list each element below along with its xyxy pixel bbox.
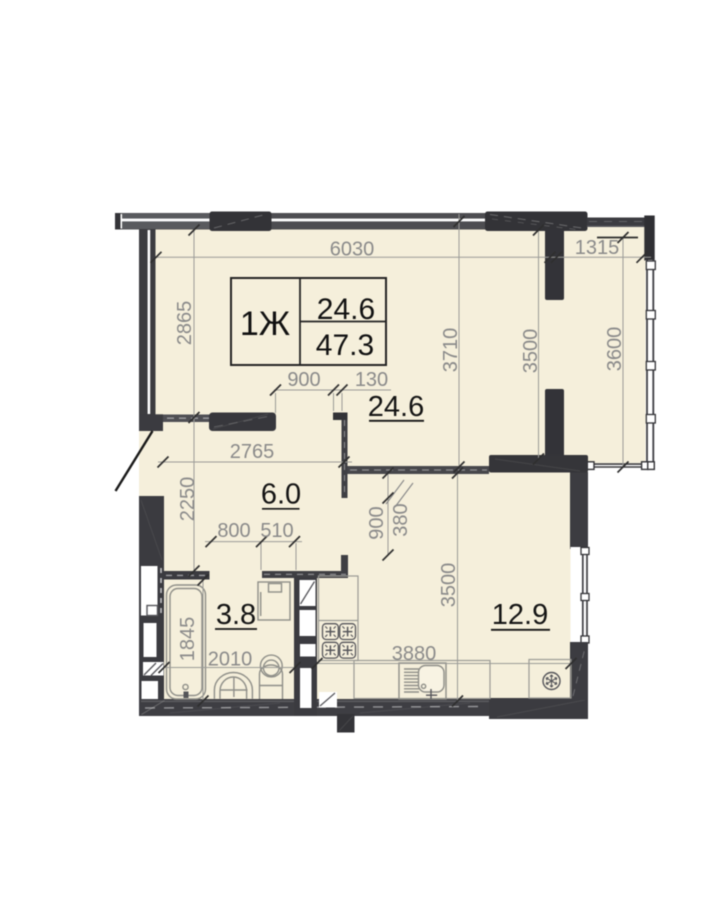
svg-text:900: 900	[287, 369, 320, 391]
svg-text:3600: 3600	[604, 327, 626, 372]
svg-text:380: 380	[390, 503, 412, 536]
svg-text:6.0: 6.0	[261, 479, 301, 511]
svg-text:2765: 2765	[230, 441, 275, 463]
svg-text:510: 510	[260, 520, 293, 542]
svg-text:130: 130	[355, 369, 388, 391]
svg-text:3500: 3500	[520, 329, 542, 374]
svg-text:3710: 3710	[440, 328, 462, 373]
svg-text:3880: 3880	[392, 643, 437, 665]
svg-text:12.9: 12.9	[492, 599, 548, 631]
svg-text:1845: 1845	[177, 617, 199, 662]
svg-text:900: 900	[366, 506, 388, 539]
svg-text:1315: 1315	[575, 237, 620, 259]
svg-text:2250: 2250	[177, 477, 199, 522]
svg-text:1Ж: 1Ж	[240, 305, 290, 343]
svg-text:2010: 2010	[208, 649, 253, 671]
svg-text:3500: 3500	[438, 563, 460, 608]
svg-text:2865: 2865	[174, 301, 196, 346]
svg-text:800: 800	[217, 520, 250, 542]
svg-text:24.6: 24.6	[317, 293, 375, 326]
svg-text:47.3: 47.3	[316, 329, 374, 362]
svg-text:24.6: 24.6	[368, 391, 424, 423]
svg-text:6030: 6030	[330, 239, 375, 261]
svg-text:3.8: 3.8	[216, 599, 256, 631]
